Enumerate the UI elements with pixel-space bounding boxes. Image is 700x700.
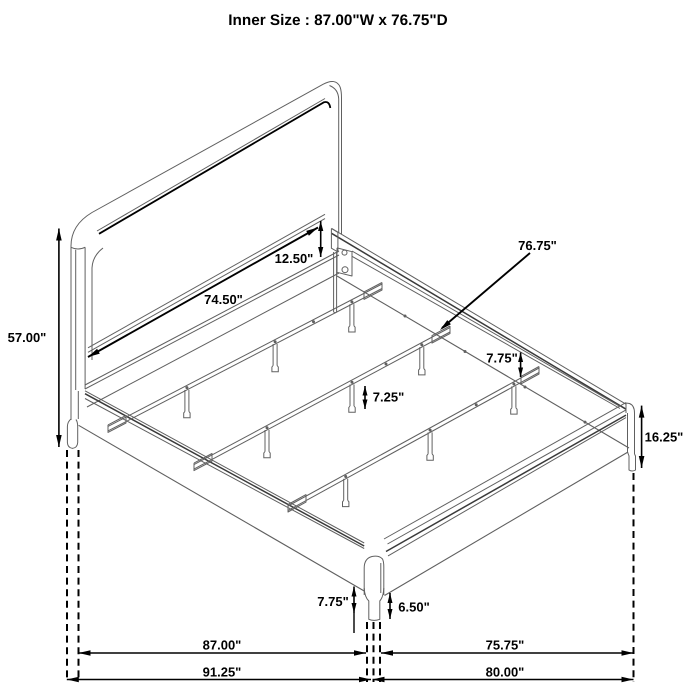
svg-text:Inner Size : 87.00"W x 76.75"D: Inner Size : 87.00"W x 76.75"D — [228, 12, 447, 29]
svg-text:6.50": 6.50" — [398, 600, 429, 615]
svg-text:7.75": 7.75" — [317, 594, 348, 609]
svg-text:57.00": 57.00" — [8, 330, 47, 345]
svg-text:16.25": 16.25" — [645, 429, 684, 444]
svg-text:7.75": 7.75" — [486, 351, 517, 366]
svg-text:76.75": 76.75" — [518, 238, 557, 253]
svg-text:12.50": 12.50" — [275, 251, 314, 266]
svg-text:87.00": 87.00" — [203, 638, 242, 653]
svg-text:7.25": 7.25" — [373, 390, 404, 405]
svg-text:80.00": 80.00" — [486, 665, 525, 680]
svg-text:75.75": 75.75" — [486, 638, 525, 653]
svg-text:74.50": 74.50" — [204, 292, 243, 307]
svg-text:91.25": 91.25" — [203, 665, 242, 680]
